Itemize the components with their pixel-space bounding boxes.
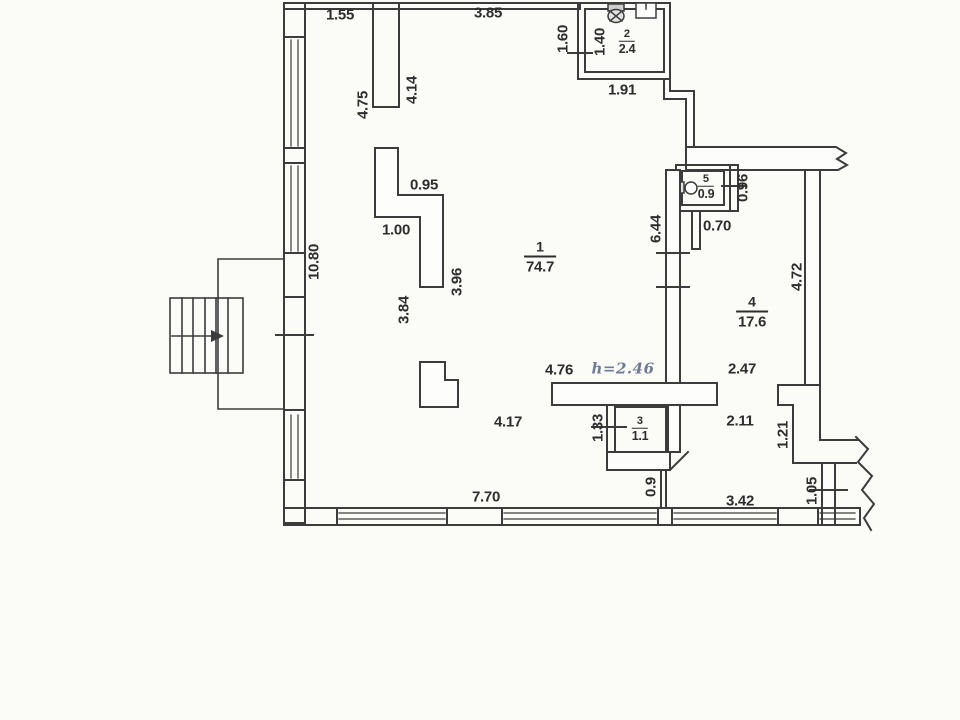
wall-break-edge bbox=[856, 437, 874, 530]
dimension-label: 3.85 bbox=[474, 6, 502, 21]
dimension-label: 1.21 bbox=[776, 421, 791, 449]
room-label-4: 4 17.6 bbox=[736, 295, 768, 330]
dimension-label: 2.47 bbox=[728, 362, 756, 377]
room-label-1: 1 74.7 bbox=[524, 240, 556, 275]
dimension-label: 3.96 bbox=[450, 268, 465, 296]
dimension-label: 4.76 bbox=[545, 363, 573, 378]
dimension-label: 3.42 bbox=[726, 494, 754, 509]
dimension-label: 6.44 bbox=[649, 215, 664, 243]
room-number: 2 bbox=[619, 29, 635, 42]
room-number: 3 bbox=[632, 416, 648, 429]
room-area: 0.9 bbox=[698, 187, 714, 201]
toilet-icon bbox=[608, 4, 624, 23]
top-right-wall bbox=[686, 147, 847, 170]
dimension-label: 2.11 bbox=[726, 414, 753, 429]
dimension-label: 4.72 bbox=[790, 263, 805, 291]
bottom-exterior-wall bbox=[284, 508, 860, 525]
dimension-label: 1.33 bbox=[591, 414, 606, 442]
dimension-label: 3.84 bbox=[397, 296, 412, 324]
dimension-label: 1.40 bbox=[593, 28, 608, 56]
dimension-label: 10.80 bbox=[307, 244, 322, 280]
dimension-label: 0.70 bbox=[703, 219, 731, 234]
room-label-3: 3 1.1 bbox=[632, 416, 648, 443]
dimension-label: 4.75 bbox=[356, 91, 371, 119]
interior-wall-horizontal bbox=[552, 383, 717, 405]
dimension-label: 7.70 bbox=[472, 490, 500, 505]
room-number: 1 bbox=[524, 240, 556, 258]
interior-wall-vertical bbox=[657, 170, 689, 452]
room-area: 1.1 bbox=[632, 429, 648, 443]
ceiling-height-note: h=2.46 bbox=[591, 362, 654, 377]
staircase bbox=[170, 259, 284, 409]
floor-plan: 1.55 3.85 1.60 1.40 1.91 4.75 4.14 0.95 … bbox=[0, 0, 960, 720]
dimension-label: 1.91 bbox=[608, 83, 636, 98]
dimension-label: 0.96 bbox=[736, 174, 751, 202]
z-partition-wall bbox=[375, 148, 443, 287]
dimension-label: 0.9 bbox=[644, 477, 659, 497]
dimension-label: 4.17 bbox=[494, 415, 522, 430]
water-heater-icon bbox=[636, 3, 656, 18]
room-area: 74.7 bbox=[524, 258, 556, 275]
wall-stub bbox=[692, 211, 700, 249]
floor-plan-drawing bbox=[0, 0, 960, 720]
window-glazing-left bbox=[291, 40, 298, 478]
dimension-label: 4.14 bbox=[405, 76, 420, 104]
dimension-label: 0.95 bbox=[410, 178, 438, 193]
dimension-label: 1.05 bbox=[805, 477, 820, 505]
dimension-label: 1.00 bbox=[382, 223, 410, 238]
room-area: 17.6 bbox=[736, 313, 768, 330]
room-label-5: 5 0.9 bbox=[698, 174, 714, 201]
room-area: 2.4 bbox=[619, 42, 635, 56]
room-number: 5 bbox=[698, 174, 714, 187]
column bbox=[420, 362, 458, 407]
room2-walls bbox=[568, 3, 694, 147]
room-label-2: 2 2.4 bbox=[619, 29, 635, 56]
dimension-label: 1.55 bbox=[326, 8, 354, 23]
wall-stub bbox=[373, 3, 399, 107]
room-number: 4 bbox=[736, 295, 768, 313]
dimension-label: 1.60 bbox=[556, 25, 571, 53]
room4-right-wall bbox=[778, 170, 874, 530]
